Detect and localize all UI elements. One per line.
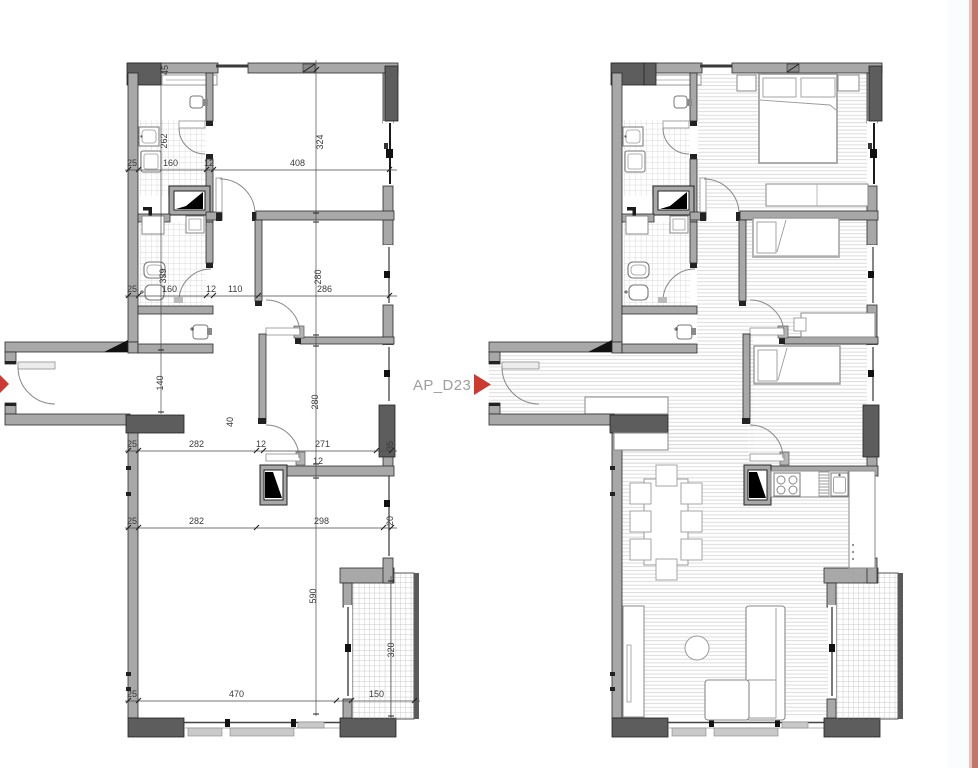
svg-text:AP_D23: AP_D23 bbox=[413, 377, 471, 394]
svg-text:282: 282 bbox=[189, 516, 204, 526]
svg-text:160: 160 bbox=[163, 158, 178, 168]
svg-text:12: 12 bbox=[204, 158, 214, 168]
svg-text:282: 282 bbox=[189, 439, 204, 449]
svg-text:40: 40 bbox=[225, 417, 235, 427]
svg-text:280: 280 bbox=[313, 269, 323, 284]
svg-text:262: 262 bbox=[159, 133, 169, 148]
svg-text:470: 470 bbox=[229, 689, 244, 699]
svg-text:25: 25 bbox=[127, 439, 137, 449]
svg-text:271: 271 bbox=[315, 439, 330, 449]
svg-text:298: 298 bbox=[314, 516, 329, 526]
svg-text:20: 20 bbox=[385, 516, 395, 526]
svg-text:12: 12 bbox=[206, 284, 216, 294]
svg-text:110: 110 bbox=[228, 284, 242, 294]
svg-text:35: 35 bbox=[385, 441, 395, 451]
svg-text:12: 12 bbox=[313, 456, 323, 466]
svg-text:160: 160 bbox=[162, 284, 177, 294]
svg-text:25: 25 bbox=[127, 284, 137, 294]
svg-text:25: 25 bbox=[127, 158, 137, 168]
svg-text:324: 324 bbox=[315, 134, 325, 149]
svg-text:280: 280 bbox=[310, 394, 320, 409]
svg-text:339: 339 bbox=[158, 268, 168, 283]
svg-text:25: 25 bbox=[127, 689, 137, 699]
svg-text:590: 590 bbox=[308, 588, 318, 603]
svg-text:408: 408 bbox=[290, 158, 305, 168]
svg-text:12: 12 bbox=[256, 439, 266, 449]
svg-text:140: 140 bbox=[155, 375, 165, 390]
svg-text:25: 25 bbox=[127, 516, 137, 526]
svg-text:45: 45 bbox=[160, 65, 170, 75]
svg-text:320: 320 bbox=[386, 642, 396, 657]
svg-text:150: 150 bbox=[369, 689, 384, 699]
